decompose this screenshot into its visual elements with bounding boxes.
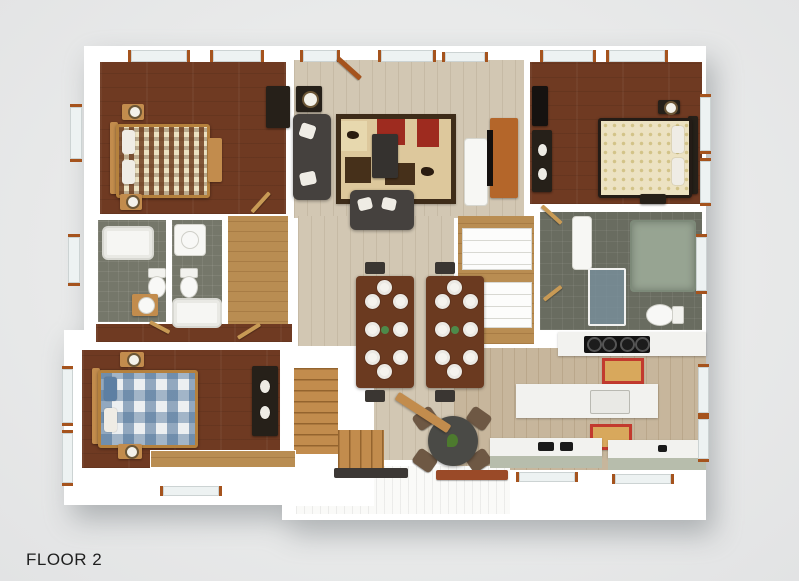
rug-moose-motif-1 [347,131,359,139]
tv-screen [487,130,493,186]
table2-chair-top [435,262,455,274]
window [128,50,190,62]
place-setting [377,280,392,295]
rug-moose-motif-2 [421,167,434,176]
counter-appliance-2 [560,442,573,451]
window [442,52,488,62]
rug-patch-dark-1 [345,157,371,183]
place-setting [463,322,478,337]
rug-patch-red-2 [417,119,439,147]
bedroom3-deco-2 [260,406,270,419]
dresser-vase-1 [538,144,547,156]
place-setting [447,364,462,379]
place-setting [463,294,478,309]
counter-bottom-left-front [490,456,602,468]
bath-center-sink [181,231,199,249]
burner [587,337,602,352]
table1-centerpiece [381,326,389,334]
bedroom3-closet-strip [150,450,296,468]
place-setting [365,350,380,365]
table1-chair-top [365,262,385,274]
bedroom1-dresser [266,86,290,128]
bath-center-toilet-bowl [180,276,198,298]
dining-table-1 [356,276,414,388]
cooktop [584,336,650,353]
window [62,430,73,486]
place-setting [435,350,450,365]
bed2-pillow-1 [672,126,684,153]
burner [635,337,650,352]
place-setting [447,280,462,295]
window [698,416,709,462]
floor-plan-render: FLOOR 2 [0,0,799,581]
table2-chair-bottom [435,390,455,402]
window [160,486,222,496]
bed3-pillow-blue [104,377,117,401]
bed1-bench [208,138,222,182]
counter-bottom-right-front [608,458,706,470]
master-bath-toilet-tank [672,306,684,324]
place-setting [393,350,408,365]
bed3-lamp-bottom [125,445,139,459]
living-white-cabinet [464,138,488,206]
kitchen-island [516,384,658,418]
window [612,474,674,484]
bath-left-sink [138,297,155,314]
window [70,104,82,162]
stairs-upper-flight [294,368,338,454]
round-table-plant [447,434,458,447]
window [698,364,709,416]
place-setting [365,294,380,309]
counter-bottom-right [608,440,706,458]
coffee-table [372,134,398,178]
window [210,50,264,62]
table1-chair-bottom [365,390,385,402]
bedroom2-dresser [532,130,552,192]
bed1-pillow-bottom [122,160,135,184]
bedroom3-dresser [252,366,278,436]
bedroom3-deco-1 [260,380,270,393]
window [696,234,707,294]
place-setting [393,294,408,309]
bedroom2-tv [532,86,548,126]
window [700,94,711,154]
window [62,366,73,426]
master-bath-shower [588,268,626,326]
bed2-bench [640,194,666,204]
place-setting [393,322,408,337]
window [300,50,340,62]
place-setting [365,322,380,337]
closet-shelf-unit-1 [462,228,532,270]
dining-table-2 [426,276,484,388]
bed1-pillow-top [122,130,135,154]
table2-centerpiece [451,326,459,334]
master-bath-toilet-bowl [646,304,674,326]
bath-center-tub [172,298,222,328]
place-setting [463,350,478,365]
counter-appliance-1 [538,442,554,451]
porch-bench [436,470,508,480]
bed3-pillow-white [104,408,117,432]
window [700,158,711,206]
bed2-pillow-2 [672,158,684,185]
floor-label: FLOOR 2 [26,550,102,570]
window [606,50,668,62]
master-bath-vanity [572,216,592,270]
kitchen-rug-1 [602,358,644,384]
living-side-lamp [302,91,319,108]
dresser-vase-2 [538,168,547,180]
island-sink [590,390,630,414]
bath-left-tub [102,226,154,260]
porch-door-mat [334,468,408,478]
loveseat-pillow-2 [381,197,397,212]
bed1-lamp-top [128,105,142,119]
place-setting [377,364,392,379]
bed2-lamp [664,101,678,115]
burner [620,337,635,352]
place-setting [435,294,450,309]
tv-console [490,118,518,198]
bed1-lamp-bottom [126,195,140,209]
bed3-lamp-top [127,353,141,367]
window [68,234,80,286]
window [516,472,578,482]
window [378,50,436,62]
place-setting [435,322,450,337]
burner [602,337,617,352]
window [540,50,596,62]
counter-appliance-3 [658,445,667,452]
master-bath-soaking-tub [630,220,696,292]
